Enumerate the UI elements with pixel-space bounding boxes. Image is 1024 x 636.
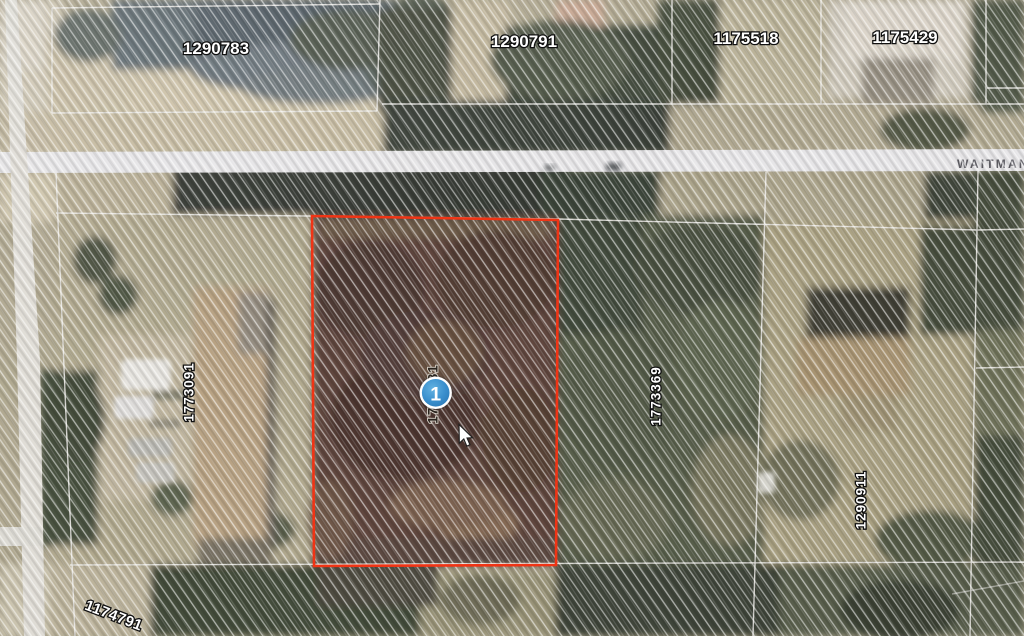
- svg-text:1175518: 1175518: [713, 29, 778, 48]
- svg-text:1: 1: [430, 384, 441, 406]
- svg-text:1290791: 1290791: [491, 32, 557, 51]
- svg-text:1773091: 1773091: [182, 362, 197, 422]
- svg-text:1290911: 1290911: [854, 471, 869, 530]
- svg-text:1773369: 1773369: [649, 366, 664, 426]
- svg-text:1290783: 1290783: [183, 39, 249, 58]
- svg-text:1175429: 1175429: [872, 28, 937, 47]
